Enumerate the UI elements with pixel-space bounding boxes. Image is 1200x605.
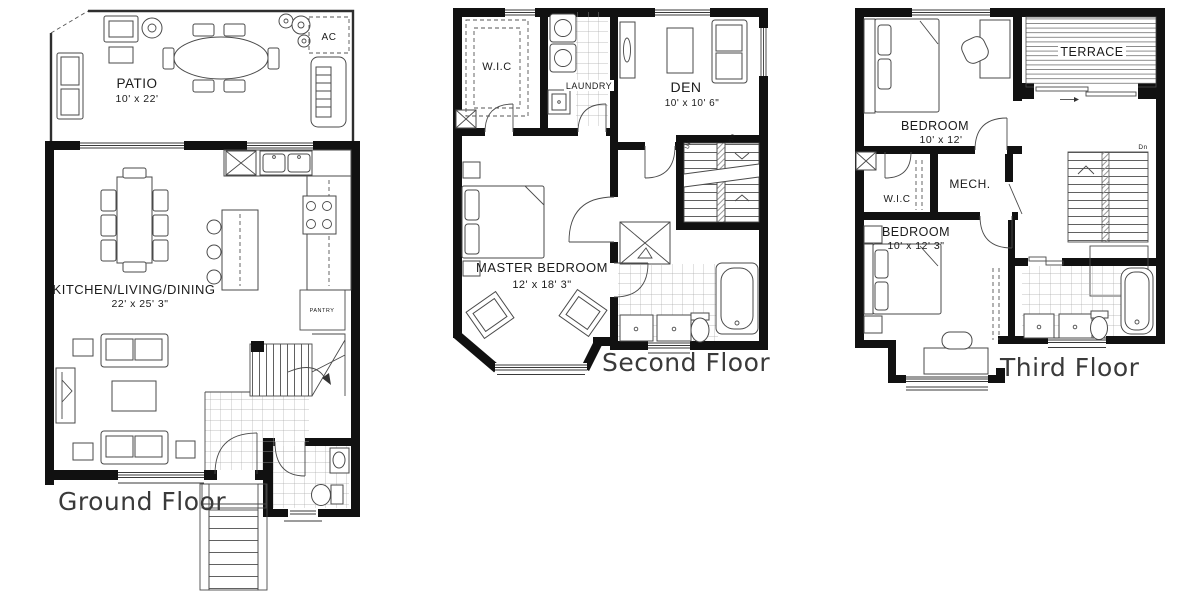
vanity-sink [1059, 314, 1092, 338]
coffee-table [112, 381, 156, 411]
shaft-box [456, 110, 476, 128]
bay-wall [456, 334, 497, 369]
bedroom-lower-label: BEDROOM [882, 225, 950, 239]
master-bedroom-dims: 12' x 18' 3" [512, 279, 571, 291]
bbq-grill [311, 57, 346, 127]
sink [330, 448, 349, 473]
bed [462, 186, 544, 258]
third-floor-plan: TERRACE BEDROOM 10' x 12' [855, 8, 1165, 390]
powder-room [273, 442, 349, 508]
side-table [73, 443, 93, 460]
toilet [691, 313, 709, 342]
ac-label: AC [322, 32, 337, 43]
side-table [73, 339, 93, 356]
mech-room: MECH. [949, 177, 1022, 214]
pocket-door [1029, 257, 1063, 265]
shower [620, 222, 670, 264]
ground-floor-plan: AC PATIO 10' x 22' [45, 11, 360, 590]
bed [864, 244, 941, 314]
laundry-sink [548, 90, 570, 114]
bathtub [716, 263, 758, 334]
stair-down-label: Dn [1138, 144, 1147, 151]
bathroom [1022, 257, 1153, 340]
patio-armchair [104, 16, 138, 63]
vanity-sink [620, 315, 653, 341]
bedroom-upper-label: BEDROOM [901, 119, 969, 133]
kitchen-label: KITCHEN/LIVING/DINING [53, 282, 216, 297]
kitchen: PANTRY KITCHEN/LIVING/DINING 22' x 25' 3… [53, 150, 351, 330]
patio-plants [279, 14, 310, 47]
master-bedroom-label: MASTER BEDROOM [476, 260, 608, 275]
second-floor-plan: W.I.C LAUNDRY [453, 8, 770, 377]
bedroom-upper-dims: 10' x 12' [920, 134, 963, 146]
shaft-box [856, 152, 876, 170]
nightstand [864, 226, 882, 243]
patio-round-table [142, 18, 162, 38]
bathtub [1121, 268, 1153, 334]
desk [924, 348, 988, 374]
patio-sofa [57, 53, 83, 119]
wic-label: W.I.C [884, 194, 911, 205]
terrace-label: TERRACE [1060, 45, 1123, 59]
dining-table [101, 168, 168, 272]
closet-rod [993, 268, 999, 340]
wic-door [885, 152, 911, 178]
bedroom-lower: BEDROOM 10' x 12' 3" [864, 216, 1012, 374]
bedroom-door [975, 118, 1007, 150]
laundry-label: LAUNDRY [566, 81, 612, 91]
laundry-room: LAUNDRY [548, 12, 614, 132]
patio-dims: 10' x 22' [116, 93, 159, 105]
stair-direction-arrow [322, 373, 331, 385]
desk-chair [942, 332, 972, 349]
mech-label: MECH. [949, 177, 990, 191]
sofa [101, 334, 168, 367]
patio-dining-set [163, 24, 279, 92]
third-floor-name: Third Floor [999, 353, 1140, 382]
dryer [550, 44, 576, 72]
walk-in-closet: W.I.C [856, 152, 922, 210]
second-floor-name: Second Floor [602, 348, 770, 377]
staircase [250, 334, 345, 396]
bedroom-lower-dims: 10' x 12' 3" [888, 240, 945, 252]
master-bathroom [614, 222, 758, 342]
terrace: TERRACE [1026, 17, 1156, 102]
ground-floor-name: Ground Floor [58, 487, 226, 516]
accent-chair [466, 292, 514, 339]
entry-hall [200, 334, 349, 590]
vanity-sink [1024, 314, 1054, 338]
bed [864, 19, 939, 113]
mech-door [1009, 184, 1022, 214]
toilet [312, 485, 344, 506]
tv-console [56, 368, 75, 423]
master-door [569, 197, 614, 242]
walk-in-closet: W.I.C [456, 20, 528, 132]
bedroom-door [980, 216, 1012, 248]
den-label: DEN [670, 79, 701, 95]
vanity-sink [657, 315, 691, 341]
master-bedroom: MASTER BEDROOM 12' x 18' 3" [462, 162, 614, 338]
floor-plan-drawing: AC PATIO 10' x 22' [0, 0, 1200, 605]
patio-side-table [109, 47, 133, 63]
toilet [1091, 311, 1109, 340]
den-dims: 10' x 10' 6" [665, 98, 720, 109]
patio: AC PATIO 10' x 22' [51, 11, 353, 141]
media-unit [620, 22, 635, 78]
accent-chair [559, 290, 607, 337]
nightstand [864, 316, 882, 333]
wic-label: W.I.C [482, 61, 511, 73]
den-table [667, 28, 693, 73]
staircase: UP DN [684, 133, 759, 222]
sofa [101, 431, 168, 464]
kitchen-sink [260, 151, 312, 175]
patio-gate [51, 11, 88, 33]
sliding-door [1034, 85, 1138, 102]
bedroom-upper: BEDROOM 10' x 12' [864, 19, 1010, 150]
pantry-label: PANTRY [310, 308, 335, 314]
den-sofa [712, 20, 747, 83]
washer [550, 14, 576, 42]
laundry-floor [576, 12, 608, 126]
side-table [176, 441, 195, 458]
cooktop-hatch [226, 151, 256, 175]
patio-label: PATIO [116, 76, 157, 91]
kitchen-island [207, 210, 258, 290]
stair-rail [1102, 152, 1109, 242]
stove [303, 196, 336, 234]
den-door [645, 146, 675, 178]
kitchen-dims: 22' x 25' 3" [112, 298, 169, 310]
nightstand [463, 162, 480, 178]
floor-plan-canvas: AC PATIO 10' x 22' [0, 0, 1200, 605]
living-area [56, 334, 195, 464]
